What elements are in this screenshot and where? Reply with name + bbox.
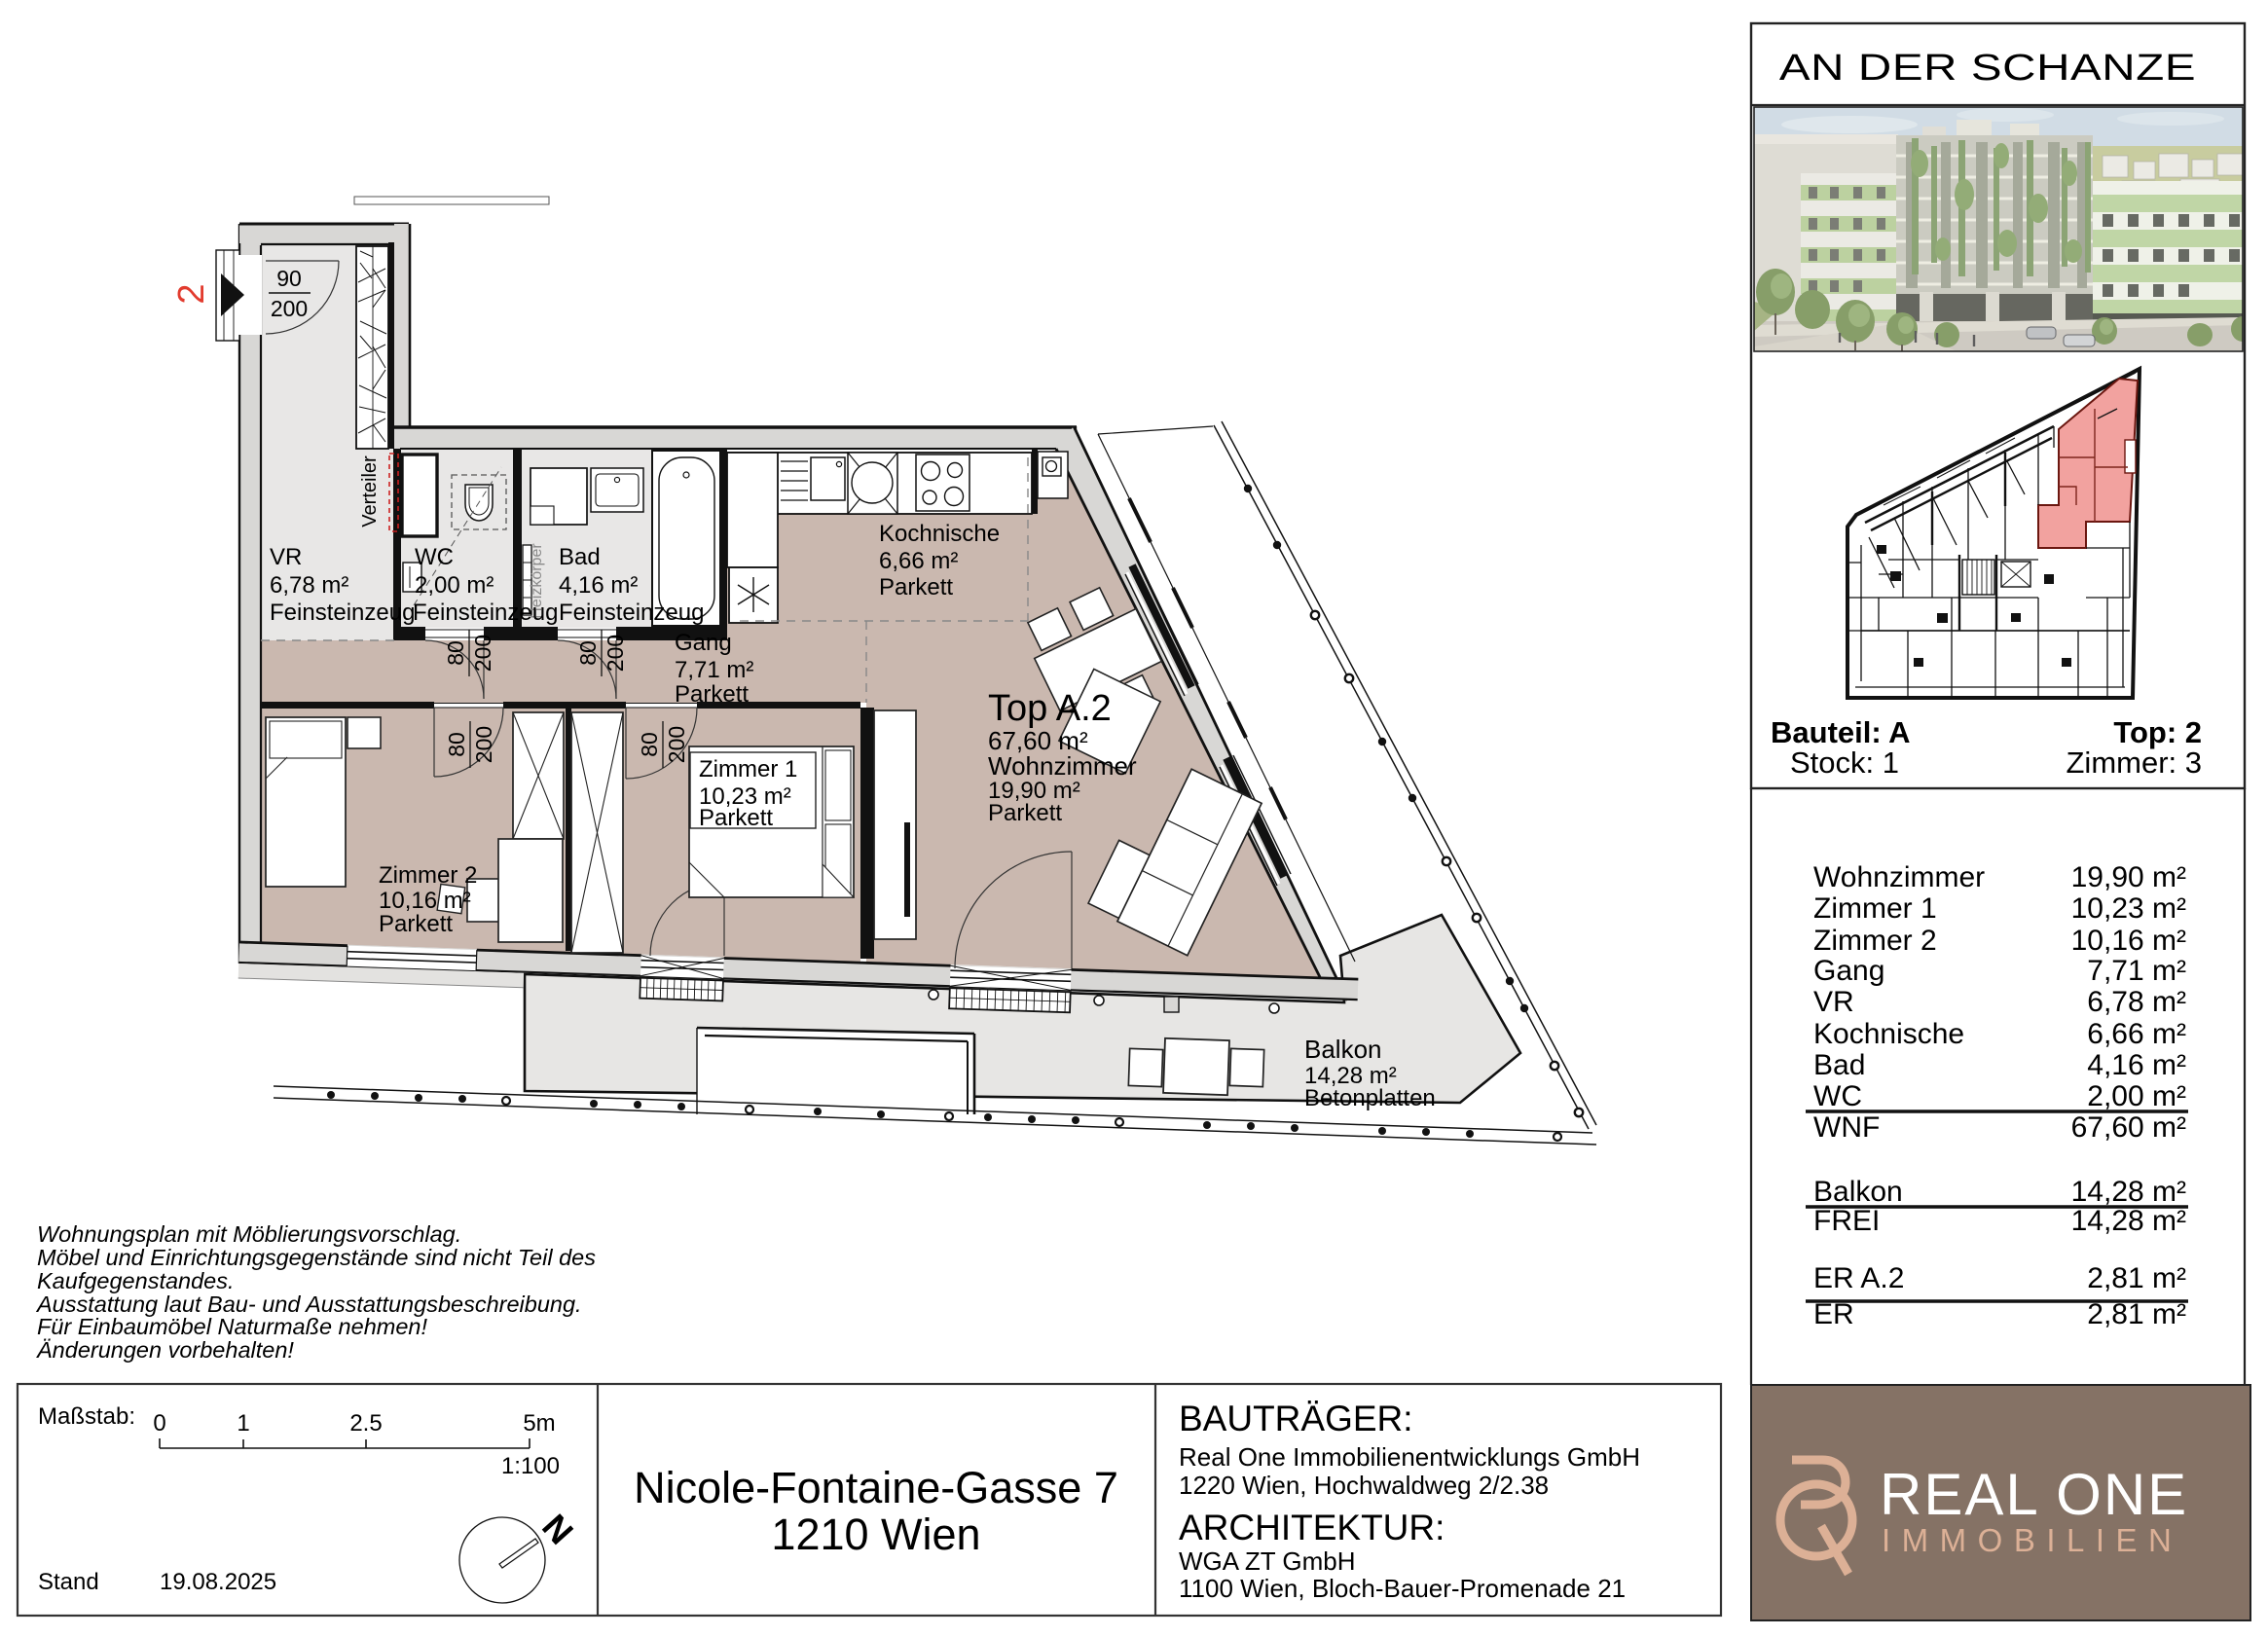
svg-text:1220 Wien, Hochwaldweg 2/2.38: 1220 Wien, Hochwaldweg 2/2.38 <box>1179 1471 1549 1500</box>
svg-text:2,00 m²: 2,00 m² <box>415 572 494 599</box>
svg-text:10,16 m²: 10,16 m² <box>379 888 471 914</box>
svg-text:Feinsteinzeug: Feinsteinzeug <box>270 600 415 626</box>
svg-text:Stock: 1: Stock: 1 <box>1790 746 1899 780</box>
svg-text:ER A.2: ER A.2 <box>1813 1262 1904 1294</box>
svg-text:90: 90 <box>276 266 302 291</box>
svg-text:7,71 m²: 7,71 m² <box>2087 955 2186 987</box>
svg-text:14,28 m²: 14,28 m² <box>2071 1176 2186 1208</box>
svg-text:6,78 m²: 6,78 m² <box>270 572 348 599</box>
svg-text:Bad: Bad <box>1813 1049 1865 1081</box>
svg-text:VR: VR <box>1813 986 1854 1018</box>
svg-text:0: 0 <box>153 1410 165 1437</box>
svg-text:6,78 m²: 6,78 m² <box>2087 986 2186 1018</box>
svg-text:Betonplatten: Betonplatten <box>1304 1085 1436 1111</box>
svg-text:Parkett: Parkett <box>879 574 953 600</box>
svg-text:2,00 m²: 2,00 m² <box>2087 1080 2186 1112</box>
svg-text:200: 200 <box>271 296 308 321</box>
svg-text:Gang: Gang <box>1813 955 1884 987</box>
svg-text:4,16 m²: 4,16 m² <box>2087 1049 2186 1081</box>
svg-text:6,66 m²: 6,66 m² <box>879 548 958 574</box>
svg-text:Parkett: Parkett <box>699 805 773 831</box>
svg-text:80: 80 <box>575 640 601 666</box>
svg-text:REAL ONE: REAL ONE <box>1880 1462 2188 1527</box>
svg-text:2,81 m²: 2,81 m² <box>2087 1298 2186 1330</box>
svg-text:2,81 m²: 2,81 m² <box>2087 1262 2186 1294</box>
svg-text:Verteiler: Verteiler <box>359 455 381 527</box>
svg-text:10,16 m²: 10,16 m² <box>2071 925 2186 957</box>
svg-text:200: 200 <box>470 635 495 672</box>
svg-text:Zimmer 1: Zimmer 1 <box>1813 892 1937 925</box>
svg-text:Gang: Gang <box>675 630 732 656</box>
svg-text:Balkon: Balkon <box>1813 1176 1903 1208</box>
svg-text:80: 80 <box>637 732 662 757</box>
svg-text:Parkett: Parkett <box>379 911 453 937</box>
svg-text:Real One Immobilienentwicklung: Real One Immobilienentwicklungs GmbH <box>1179 1442 1640 1472</box>
svg-text:Zimmer 2: Zimmer 2 <box>1813 925 1937 957</box>
svg-text:Maßstab:: Maßstab: <box>38 1403 135 1430</box>
svg-text:6,66 m²: 6,66 m² <box>2087 1018 2186 1050</box>
svg-text:Parkett: Parkett <box>988 800 1062 826</box>
svg-text:19.08.2025: 19.08.2025 <box>160 1569 276 1595</box>
svg-text:80: 80 <box>444 732 469 757</box>
svg-text:Feinsteinzeug: Feinsteinzeug <box>413 600 558 626</box>
svg-text:ARCHITEKTUR:: ARCHITEKTUR: <box>1179 1508 1445 1547</box>
svg-text:4,16 m²: 4,16 m² <box>559 572 638 599</box>
svg-text:10,23 m²: 10,23 m² <box>2071 892 2186 925</box>
svg-text:Feinsteinzeug: Feinsteinzeug <box>559 600 704 626</box>
svg-text:1:100: 1:100 <box>501 1453 560 1479</box>
svg-text:Parkett: Parkett <box>675 681 749 708</box>
svg-text:Möbel und Einrichtungsgegenstä: Möbel und Einrichtungsgegenstände sind n… <box>37 1245 596 1270</box>
svg-text:Änderungen vorbehalten!: Änderungen vorbehalten! <box>36 1337 294 1363</box>
svg-text:Für Einbaumöbel Naturmaße nehm: Für Einbaumöbel Naturmaße nehmen! <box>37 1314 427 1339</box>
svg-text:2.5: 2.5 <box>349 1410 382 1437</box>
svg-text:7,71 m²: 7,71 m² <box>675 657 753 683</box>
svg-text:Zimmer 2: Zimmer 2 <box>379 862 477 889</box>
svg-text:Wohnzimmer: Wohnzimmer <box>1813 861 1985 893</box>
svg-text:AN DER SCHANZE: AN DER SCHANZE <box>1779 47 2196 88</box>
svg-text:WNF: WNF <box>1813 1111 1880 1144</box>
svg-text:Bad: Bad <box>559 544 601 570</box>
svg-text:5m: 5m <box>523 1410 555 1437</box>
svg-text:Nicole-Fontaine-Gasse 7: Nicole-Fontaine-Gasse 7 <box>634 1463 1118 1512</box>
svg-text:Top A.2: Top A.2 <box>988 688 1112 729</box>
svg-text:VR: VR <box>270 544 302 570</box>
svg-text:1210 Wien: 1210 Wien <box>771 1510 980 1559</box>
svg-text:Kochnische: Kochnische <box>879 521 1000 547</box>
svg-text:BAUTRÄGER:: BAUTRÄGER: <box>1179 1399 1413 1438</box>
svg-text:Wohnungsplan mit Möblierungsvo: Wohnungsplan mit Möblierungsvorschlag. <box>37 1221 461 1247</box>
svg-text:Stand: Stand <box>38 1569 99 1595</box>
svg-text:200: 200 <box>471 726 496 763</box>
svg-text:WC: WC <box>1813 1080 1862 1112</box>
svg-text:Balkon: Balkon <box>1304 1035 1382 1064</box>
svg-text:Top: 2: Top: 2 <box>2113 715 2202 749</box>
svg-text:Bauteil: A: Bauteil: A <box>1771 715 1911 749</box>
svg-text:14,28 m²: 14,28 m² <box>2071 1205 2186 1237</box>
svg-text:Kaufgegenstandes.: Kaufgegenstandes. <box>37 1268 235 1293</box>
svg-text:Kochnische: Kochnische <box>1813 1018 1964 1050</box>
svg-text:1100 Wien, Bloch-Bauer-Promena: 1100 Wien, Bloch-Bauer-Promenade 21 <box>1179 1574 1626 1603</box>
svg-text:ER: ER <box>1813 1298 1854 1330</box>
svg-text:200: 200 <box>603 635 628 672</box>
svg-text:200: 200 <box>664 726 689 763</box>
svg-text:Wohnzimmer: Wohnzimmer <box>988 751 1137 781</box>
svg-text:80: 80 <box>443 640 468 666</box>
svg-text:19,90 m²: 19,90 m² <box>2071 861 2186 893</box>
svg-text:2: 2 <box>171 283 212 304</box>
svg-text:FREI: FREI <box>1813 1205 1880 1237</box>
svg-text:IMMOBILIEN: IMMOBILIEN <box>1882 1522 2182 1558</box>
svg-text:1: 1 <box>237 1410 249 1437</box>
svg-text:Zimmer 1: Zimmer 1 <box>699 756 797 782</box>
svg-text:Zimmer: 3: Zimmer: 3 <box>2067 746 2203 780</box>
svg-text:WGA ZT GmbH: WGA ZT GmbH <box>1179 1546 1356 1576</box>
svg-text:67,60 m²: 67,60 m² <box>2071 1111 2186 1144</box>
svg-text:WC: WC <box>415 544 454 570</box>
